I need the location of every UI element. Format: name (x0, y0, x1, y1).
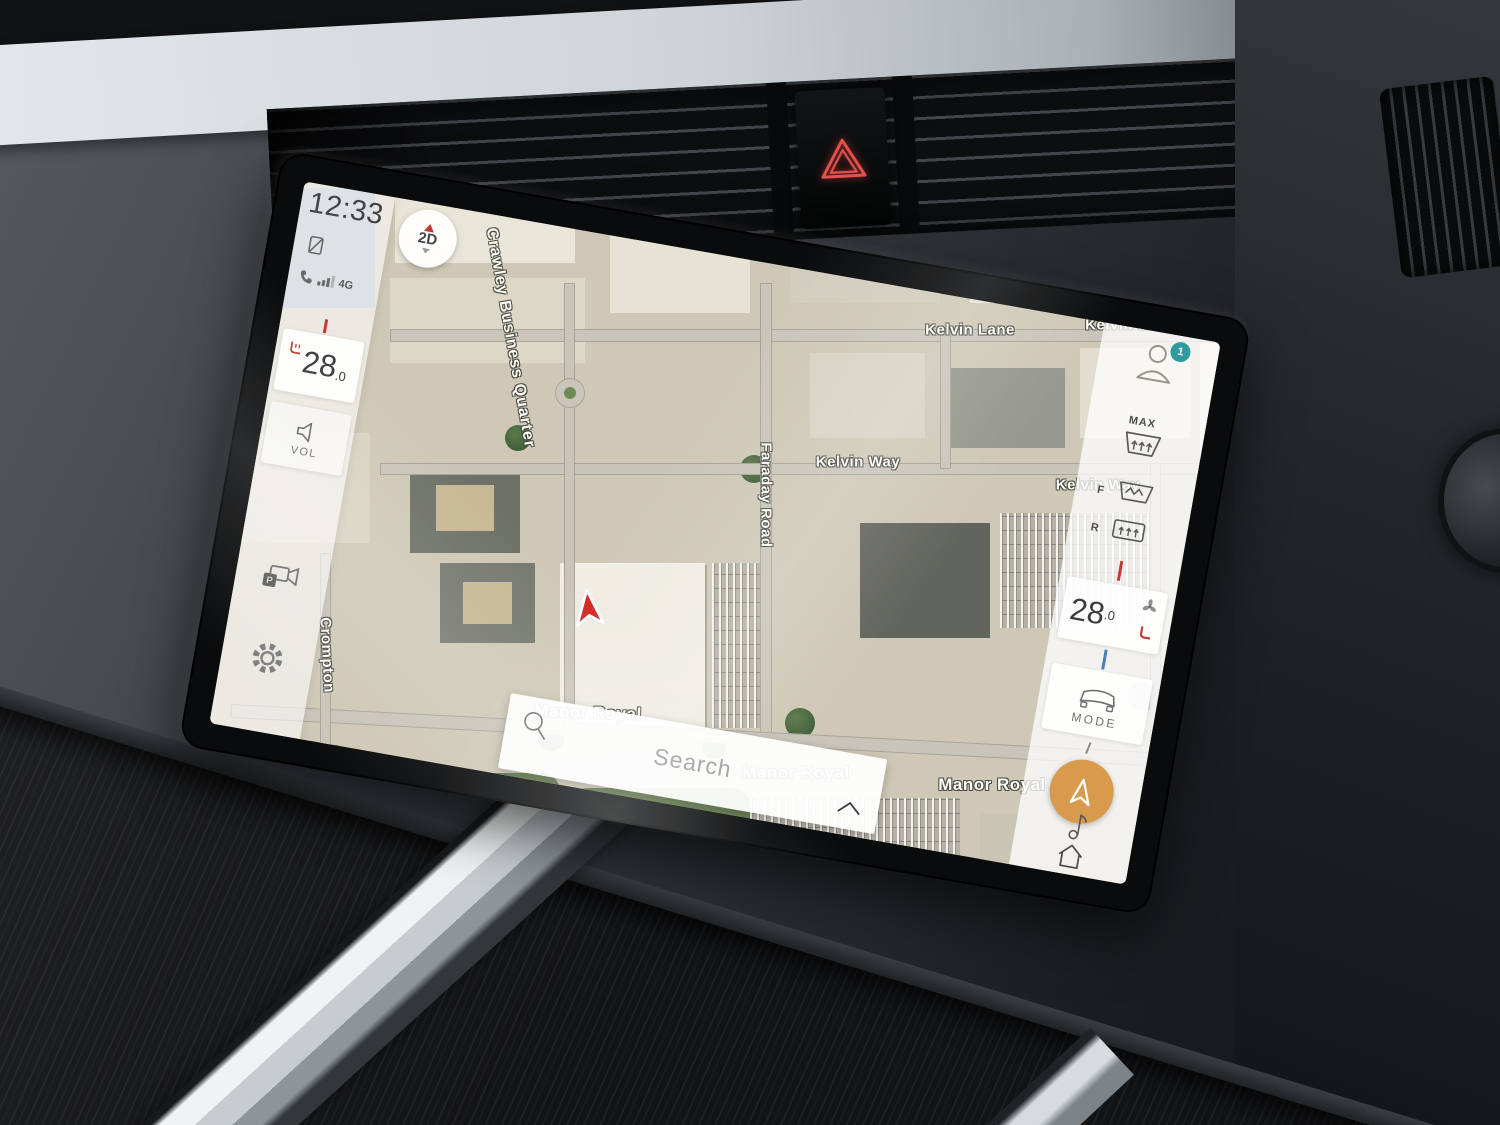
map-building (940, 368, 1065, 448)
navigation-map-view[interactable]: Kelvin Lane Kelvin Lane Kelvin Way Kelvi… (209, 181, 1220, 884)
driver-temp-value: 28 (300, 346, 339, 383)
max-defrost-icon (1115, 427, 1168, 467)
passenger-temp-decimal: .0 (1103, 606, 1116, 623)
panel-tick (1085, 742, 1091, 754)
seat-heat-icon (1136, 624, 1154, 647)
map-building (440, 563, 535, 643)
passenger-temperature-control[interactable]: 28 .0 (1057, 576, 1168, 655)
network-type-label: 4G (338, 278, 355, 292)
home-button[interactable] (1050, 838, 1090, 878)
max-defrost-button[interactable] (1114, 427, 1168, 472)
heat-slider-tick (323, 319, 328, 333)
map-courtyard (463, 582, 512, 624)
settings-button[interactable] (243, 635, 290, 686)
rear-defrost-icon (1104, 514, 1152, 549)
seat-heat-icon (287, 339, 304, 362)
volume-label: VOL (290, 444, 318, 460)
volume-button[interactable]: VOL (260, 401, 352, 476)
home-icon (1051, 838, 1090, 873)
street-label-kelvin-way: Kelvin Way (816, 454, 900, 471)
chevron-up-icon[interactable] (830, 796, 867, 825)
street-label-crompton: Crompton (317, 617, 338, 693)
fan-icon (1140, 597, 1159, 620)
clock: 12:33 (306, 187, 386, 233)
signal-bars-icon (316, 272, 336, 289)
infotainment-screen[interactable]: Kelvin Lane Kelvin Lane Kelvin Way Kelvi… (209, 181, 1220, 884)
map-building (410, 463, 520, 553)
passenger-temp-value: 28 (1068, 593, 1107, 630)
status-icons-row: 4G (297, 268, 354, 292)
map-building (860, 523, 990, 638)
map-building (390, 278, 585, 363)
street-label-kelvin-lane: Kelvin Lane (925, 322, 1015, 339)
temp-slider-hot[interactable] (1117, 561, 1123, 581)
defrost-rear-label: R (1090, 521, 1101, 534)
music-note-icon (1060, 809, 1091, 843)
driver-temp-decimal: .0 (334, 368, 347, 385)
gear-icon (244, 635, 290, 681)
temp-slider-cold[interactable] (1101, 649, 1107, 669)
device-disconnected-icon (304, 233, 326, 263)
parking-camera-button[interactable]: P (256, 558, 304, 604)
vehicle-position-icon (567, 585, 611, 634)
map-building (810, 353, 925, 438)
map-view-mode-label: 2D (417, 230, 439, 250)
street-label-faraday-road: Faraday Road (758, 442, 775, 547)
rear-defrost-button[interactable] (1104, 514, 1153, 554)
map-road (564, 283, 575, 743)
navigation-arrow-icon (1061, 771, 1103, 813)
hazard-lights-button (794, 87, 891, 230)
hazard-triangle-icon (815, 133, 871, 184)
phone-icon (297, 268, 314, 285)
car-interior-scene: Kelvin Lane Kelvin Lane Kelvin Way Kelvi… (0, 0, 1500, 1125)
front-defrost-icon (1111, 477, 1159, 512)
chevron-down-icon (421, 248, 430, 254)
map-road (940, 329, 951, 469)
speaker-icon (289, 416, 325, 447)
map-roundabout (555, 378, 585, 408)
driver-temperature-control[interactable]: 28 .0 (273, 328, 365, 403)
defrost-front-label: F (1096, 484, 1106, 497)
front-defrost-button[interactable] (1110, 477, 1159, 517)
drive-mode-button[interactable]: MODE (1041, 663, 1153, 746)
map-courtyard (436, 485, 493, 532)
